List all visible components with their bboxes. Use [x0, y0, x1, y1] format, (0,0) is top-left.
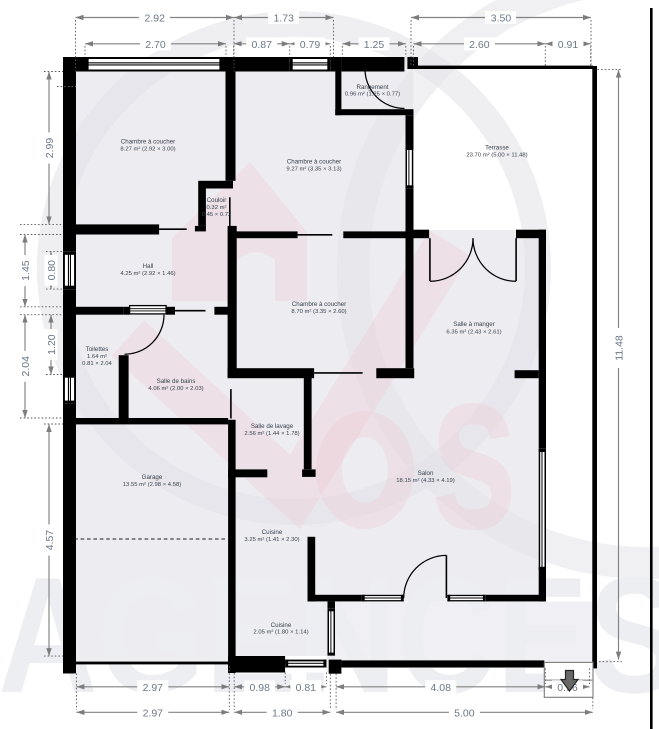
svg-text:2.92: 2.92 — [144, 13, 165, 25]
svg-text:0.45 × 0.72: 0.45 × 0.72 — [202, 212, 232, 218]
svg-text:Salle de lavage: Salle de lavage — [251, 423, 294, 430]
svg-text:2.04: 2.04 — [20, 356, 32, 377]
svg-text:4.06 m² (2.00 × 2.03): 4.06 m² (2.00 × 2.03) — [148, 386, 203, 392]
svg-text:0.87: 0.87 — [251, 39, 272, 51]
svg-text:s: s — [430, 319, 518, 579]
svg-text:9.27 m² (3.35 × 3.13): 9.27 m² (3.35 × 3.13) — [286, 167, 341, 173]
svg-text:2.97: 2.97 — [143, 708, 164, 720]
svg-text:18.15 m² (4.33 × 4.19): 18.15 m² (4.33 × 4.19) — [396, 478, 454, 484]
svg-text:3.50: 3.50 — [491, 13, 512, 25]
svg-text:1.73: 1.73 — [273, 13, 294, 25]
svg-text:Chambre à coucher: Chambre à coucher — [287, 159, 341, 166]
svg-text:2.99: 2.99 — [44, 138, 56, 159]
svg-text:1.80: 1.80 — [272, 708, 293, 720]
svg-text:1.45: 1.45 — [20, 260, 32, 281]
svg-text:0.91: 0.91 — [558, 39, 579, 51]
svg-text:Rangement: Rangement — [357, 84, 389, 91]
svg-text:0.80: 0.80 — [46, 260, 58, 281]
svg-text:Hall: Hall — [143, 263, 154, 270]
svg-text:Toilettes: Toilettes — [86, 346, 109, 353]
svg-text:2.60: 2.60 — [469, 39, 490, 51]
svg-text:13.55 m² (2.98 × 4.58): 13.55 m² (2.98 × 4.58) — [123, 482, 181, 488]
svg-text:Chambre à coucher: Chambre à coucher — [121, 139, 175, 146]
svg-text:8.70 m² (3.35 × 2.60): 8.70 m² (3.35 × 2.60) — [291, 309, 346, 315]
svg-text:Salle à manger: Salle à manger — [453, 321, 495, 328]
svg-text:1.20: 1.20 — [46, 334, 58, 355]
svg-text:1.64 m²: 1.64 m² — [87, 354, 107, 360]
svg-text:0.98: 0.98 — [249, 682, 270, 694]
svg-text:0.81: 0.81 — [296, 682, 317, 694]
svg-text:4.08: 4.08 — [430, 682, 451, 694]
svg-text:Garage: Garage — [142, 474, 163, 481]
svg-text:Cuisine: Cuisine — [262, 529, 283, 536]
svg-text:4.57: 4.57 — [44, 530, 56, 551]
svg-text:2.56 m² (1.44 × 1.78): 2.56 m² (1.44 × 1.78) — [244, 431, 299, 437]
svg-text:Chambre à coucher: Chambre à coucher — [292, 301, 346, 308]
svg-text:3.25 m² (1.41 × 2.30): 3.25 m² (1.41 × 2.30) — [244, 537, 299, 543]
svg-text:0.32 m²: 0.32 m² — [207, 205, 227, 211]
svg-text:Cuisine: Cuisine — [271, 622, 292, 629]
svg-text:0.96 m² (1.25 × 0.77): 0.96 m² (1.25 × 0.77) — [345, 92, 400, 98]
svg-text:2.05 m² (1.80 × 1.14): 2.05 m² (1.80 × 1.14) — [253, 630, 308, 636]
svg-text:1.25: 1.25 — [364, 39, 385, 51]
svg-text:0.79: 0.79 — [300, 39, 321, 51]
svg-text:5.00: 5.00 — [454, 708, 475, 720]
svg-text:8.27 m² (2.92 × 3.00): 8.27 m² (2.92 × 3.00) — [120, 147, 175, 153]
svg-text:23.70 m² (5.00 × 11.48): 23.70 m² (5.00 × 11.48) — [466, 153, 527, 159]
svg-text:4.25 m² (2.92 × 1.46): 4.25 m² (2.92 × 1.46) — [120, 271, 175, 277]
svg-text:Salon: Salon — [418, 470, 434, 477]
svg-text:Terrasse: Terrasse — [485, 145, 509, 152]
svg-text:6.35 m² (2.43 × 2.61): 6.35 m² (2.43 × 2.61) — [446, 330, 501, 336]
svg-text:0.81 × 2.04: 0.81 × 2.04 — [82, 361, 112, 367]
svg-text:2.70: 2.70 — [145, 39, 166, 51]
svg-text:Couloir: Couloir — [207, 197, 227, 204]
svg-text:Salle de bains: Salle de bains — [157, 378, 196, 385]
svg-text:11.48: 11.48 — [614, 335, 626, 361]
svg-text:2.97: 2.97 — [143, 682, 164, 694]
